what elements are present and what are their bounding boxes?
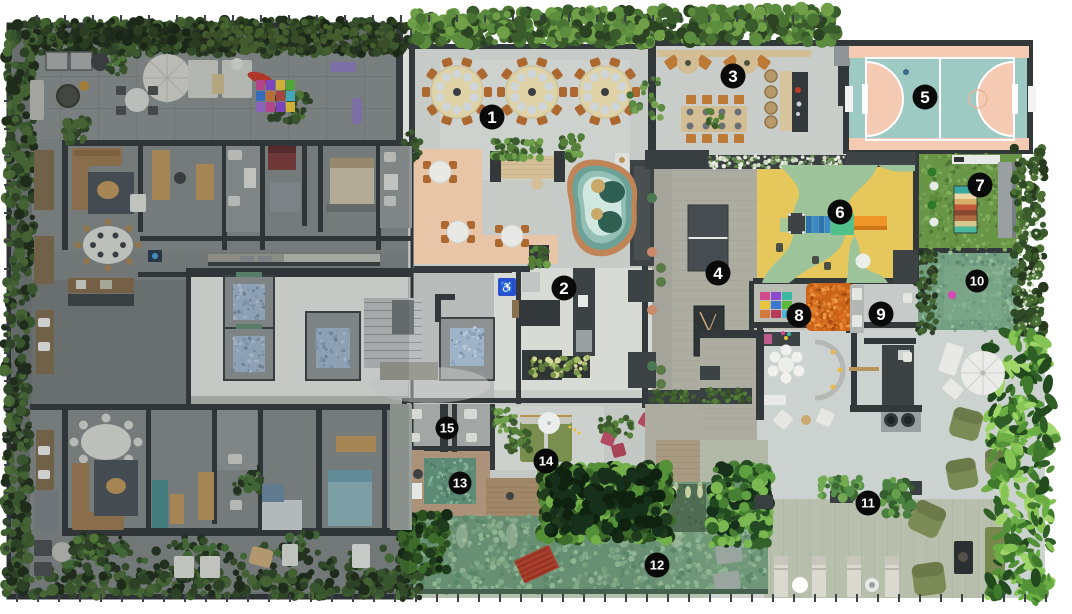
svg-text:♿: ♿ [500,281,514,294]
